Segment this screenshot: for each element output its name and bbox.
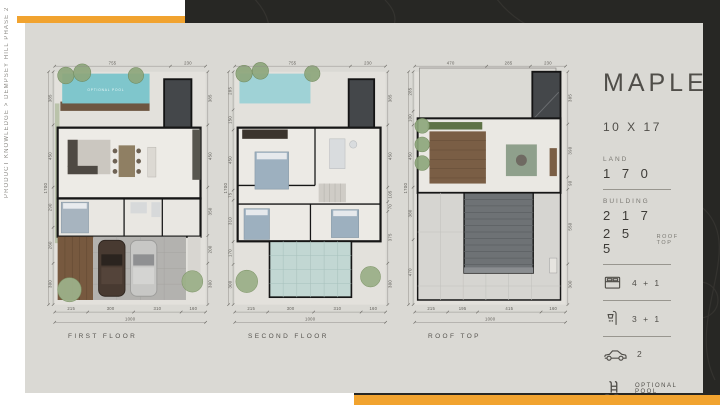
svg-text:310: 310	[154, 306, 162, 311]
svg-text:300: 300	[107, 306, 115, 311]
svg-text:300: 300	[387, 280, 392, 288]
garage-count: 2	[637, 349, 644, 359]
rooftop-svg: 470 285 230 1700 285 100 450 380 470 385	[404, 55, 576, 327]
trees-left	[415, 118, 430, 170]
svg-text:1700: 1700	[404, 183, 408, 194]
lounge-table	[516, 155, 527, 166]
feature-garage: 2	[603, 345, 697, 362]
svg-text:200: 200	[207, 245, 212, 253]
pool-label: OPTIONAL POOL	[87, 88, 124, 92]
svg-text:550: 550	[567, 222, 572, 230]
floor-label-second: SECOND FLOOR	[248, 333, 329, 340]
building-spec: BUILDING 2 1 7 2 5 5 ROOF TOP	[603, 198, 697, 256]
dining-table	[119, 145, 135, 177]
feature-bathrooms: 3 + 1	[603, 309, 697, 328]
building-label: BUILDING	[603, 198, 697, 205]
svg-text:160: 160	[549, 306, 557, 311]
unit-size: 10 X 17	[603, 120, 697, 134]
svg-text:285: 285	[228, 87, 233, 95]
stair-roof	[532, 72, 560, 122]
svg-text:350: 350	[207, 207, 212, 215]
wardrobe	[242, 130, 288, 139]
svg-text:470: 470	[447, 60, 455, 65]
floor-plan-second: 755 230 1700 285 150 450 75 310 170 300	[224, 55, 396, 360]
divider	[603, 336, 671, 337]
svg-text:375: 375	[387, 233, 392, 241]
bathtub	[330, 139, 345, 169]
pitched-roof	[464, 193, 533, 273]
land-spec: LAND 1 7 0	[603, 156, 697, 181]
stairs	[319, 184, 346, 203]
car-silver	[130, 240, 156, 296]
svg-text:380: 380	[408, 209, 413, 217]
svg-text:415: 415	[505, 306, 513, 311]
breadcrumb: PRODUCT KNOWLEDGE > DEMPSEY HILL PHASE 2	[4, 28, 20, 198]
svg-text:285: 285	[505, 60, 513, 65]
divider	[603, 264, 671, 265]
svg-text:215: 215	[247, 306, 255, 311]
svg-text:75: 75	[228, 192, 233, 198]
svg-text:385: 385	[567, 94, 572, 102]
svg-text:300: 300	[207, 280, 212, 288]
building-value: 2 1 7	[603, 208, 697, 223]
svg-text:170: 170	[228, 249, 233, 257]
svg-text:385: 385	[48, 94, 53, 102]
svg-text:230: 230	[184, 60, 192, 65]
rooftop-value: 2 5 5	[603, 226, 652, 256]
floor-plan-first: OPTIONAL POOL	[44, 55, 216, 360]
svg-text:230: 230	[364, 60, 372, 65]
bottom-margin	[0, 393, 354, 405]
svg-text:1700: 1700	[224, 183, 228, 194]
svg-text:105: 105	[387, 190, 392, 198]
svg-text:1000: 1000	[485, 317, 496, 322]
land-value: 1 7 0	[603, 166, 697, 181]
svg-text:450: 450	[387, 152, 392, 160]
svg-text:215: 215	[427, 306, 435, 311]
rooftop-label: ROOF TOP	[657, 234, 697, 246]
svg-text:195: 195	[459, 306, 467, 311]
svg-text:470: 470	[408, 268, 413, 276]
svg-text:385: 385	[387, 94, 392, 102]
sofa	[68, 166, 98, 174]
accent-bar-top	[17, 16, 185, 23]
svg-text:290: 290	[48, 203, 53, 211]
svg-text:230: 230	[544, 60, 552, 65]
svg-text:300: 300	[48, 280, 53, 288]
planter-hedge	[428, 122, 483, 129]
svg-text:1700: 1700	[44, 183, 48, 194]
svg-text:450: 450	[408, 152, 413, 160]
divider	[603, 300, 671, 301]
entry-roof	[164, 79, 191, 127]
floor-plan-rooftop: 470 285 230 1700 285 100 450 380 470 385	[404, 55, 576, 360]
svg-text:70: 70	[387, 204, 392, 210]
bed-icon	[603, 273, 622, 292]
car-dark	[99, 240, 125, 296]
svg-text:285: 285	[408, 87, 413, 95]
svg-text:100: 100	[408, 114, 413, 122]
rooftop-deck	[429, 131, 485, 183]
svg-text:385: 385	[207, 94, 212, 102]
car-icon	[603, 345, 627, 362]
bathroom-fixtures	[151, 202, 160, 217]
svg-text:260: 260	[48, 241, 53, 249]
info-panel: MAPLE 10 X 17 LAND 1 7 0 BUILDING 2 1 7 …	[603, 69, 697, 405]
svg-text:300: 300	[567, 280, 572, 288]
land-label: LAND	[603, 156, 697, 163]
svg-text:1000: 1000	[305, 317, 316, 322]
svg-text:300: 300	[287, 306, 295, 311]
shower-icon	[603, 309, 622, 328]
svg-text:390: 390	[567, 146, 572, 154]
entry-roof	[349, 79, 374, 129]
bedrooms-count: 4 + 1	[632, 278, 661, 288]
svg-text:450: 450	[48, 152, 53, 160]
svg-text:755: 755	[289, 60, 297, 65]
content-card: OPTIONAL POOL	[25, 23, 703, 393]
svg-text:215: 215	[67, 306, 75, 311]
svg-text:160: 160	[369, 306, 377, 311]
pool-option-label: OPTIONAL POOL	[635, 383, 697, 395]
svg-text:1000: 1000	[125, 317, 136, 322]
floor-label-first: FIRST FLOOR	[68, 333, 137, 340]
kitchen-island	[148, 147, 156, 177]
svg-text:90: 90	[567, 180, 572, 186]
svg-text:150: 150	[228, 116, 233, 124]
accent-bar-bottom	[354, 395, 720, 405]
svg-text:450: 450	[228, 156, 233, 164]
first-floor-svg: OPTIONAL POOL	[44, 55, 216, 327]
bathrooms-count: 3 + 1	[632, 314, 661, 324]
feature-bedrooms: 4 + 1	[603, 273, 697, 292]
svg-text:300: 300	[228, 280, 233, 288]
unit-title: MAPLE	[603, 69, 697, 98]
second-floor-svg: 755 230 1700 285 150 450 75 310 170 300	[224, 55, 396, 327]
kitchen-counter	[192, 130, 200, 180]
svg-text:450: 450	[207, 152, 212, 160]
slide: PRODUCT KNOWLEDGE > DEMPSEY HILL PHASE 2…	[0, 0, 720, 405]
svg-text:160: 160	[189, 306, 197, 311]
svg-text:310: 310	[228, 217, 233, 225]
svg-text:755: 755	[109, 60, 117, 65]
divider	[603, 189, 671, 190]
breadcrumb-sidebar: PRODUCT KNOWLEDGE > DEMPSEY HILL PHASE 2	[0, 0, 25, 405]
rooftop-value-row: 2 5 5 ROOF TOP	[603, 226, 697, 256]
svg-text:310: 310	[334, 306, 342, 311]
floor-label-rooftop: ROOF TOP	[428, 333, 481, 340]
